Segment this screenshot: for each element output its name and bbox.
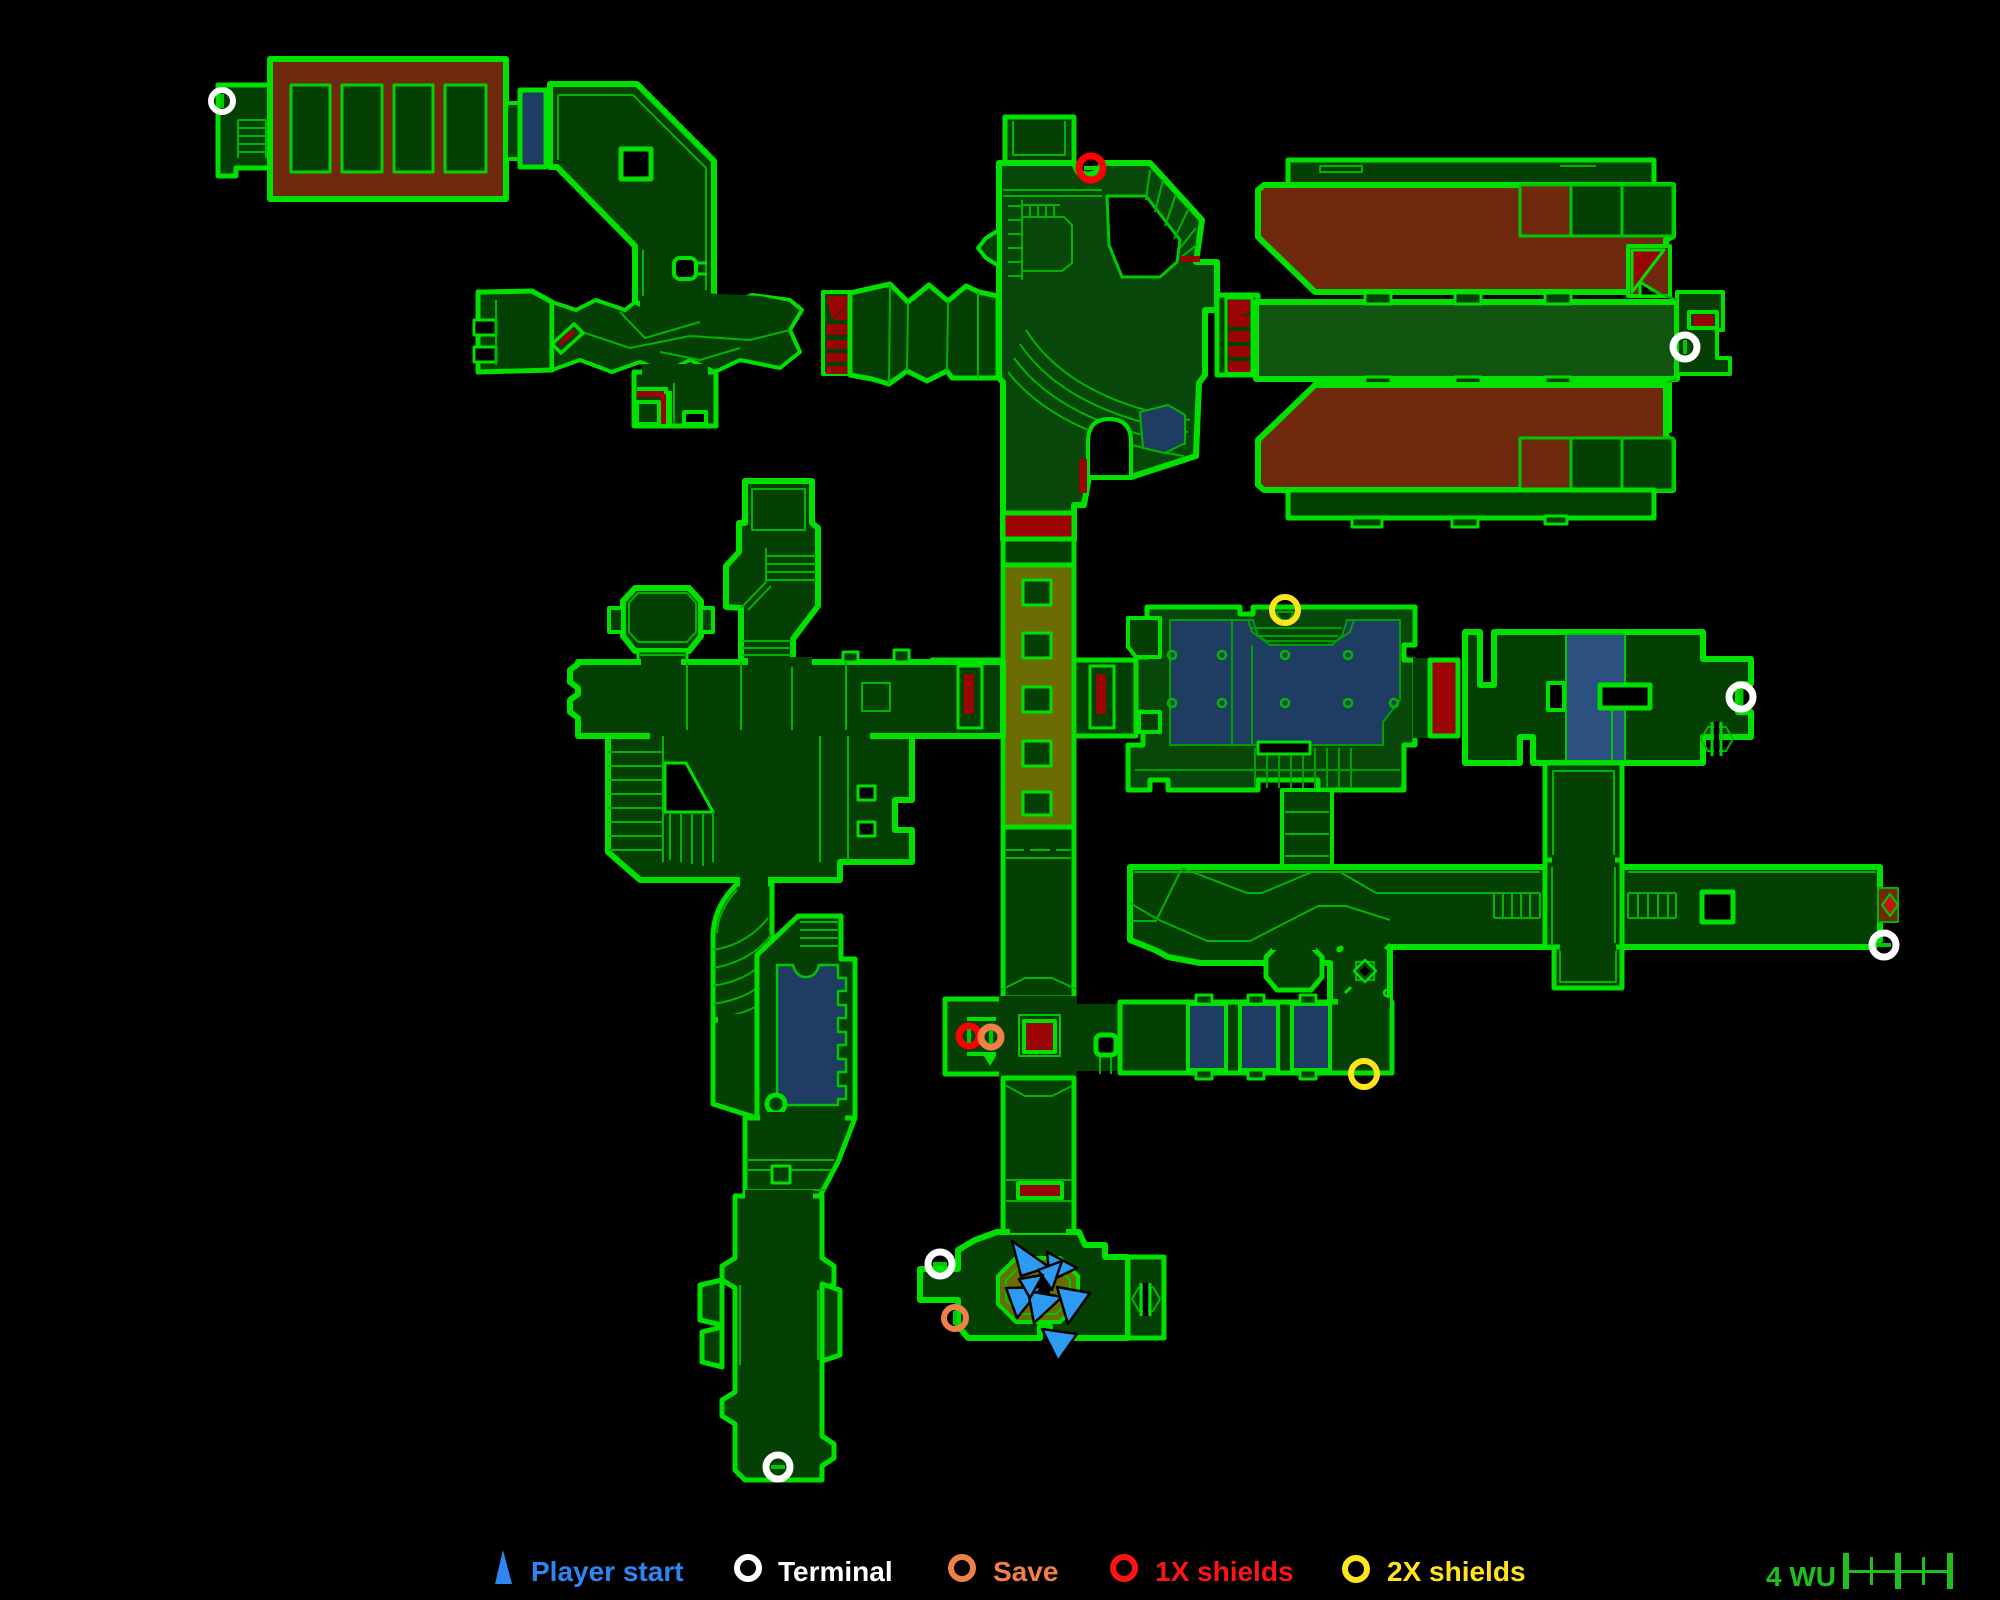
svg-text:1X shields: 1X shields bbox=[1155, 1556, 1294, 1587]
svg-text:2X shields: 2X shields bbox=[1387, 1556, 1526, 1587]
svg-text:Save: Save bbox=[993, 1556, 1058, 1587]
svg-text:Player start: Player start bbox=[531, 1556, 684, 1587]
svg-text:Terminal: Terminal bbox=[778, 1556, 893, 1587]
svg-text:4 WU: 4 WU bbox=[1766, 1561, 1836, 1592]
